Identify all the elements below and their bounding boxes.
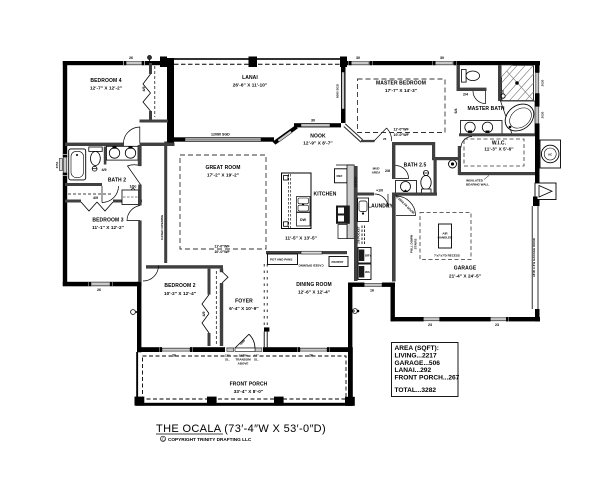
- svg-text:BATH 2: BATH 2: [108, 178, 126, 184]
- svg-text:26: 26: [129, 56, 133, 60]
- svg-text:HANDLER: HANDLER: [438, 236, 453, 240]
- svg-text:LANAI...292: LANAI...292: [395, 367, 432, 374]
- svg-text:CASED OPENING: CASED OPENING: [160, 214, 164, 240]
- svg-text:BEARING WALL: BEARING WALL: [466, 183, 489, 187]
- svg-text:FRONT PORCH...267: FRONT PORCH...267: [395, 375, 460, 382]
- svg-text:2030: 2030: [541, 79, 545, 86]
- svg-text:LANAI: LANAI: [242, 75, 258, 81]
- svg-text:26′-6″ X 11′-10″: 26′-6″ X 11′-10″: [233, 83, 268, 88]
- svg-text:26: 26: [97, 288, 101, 292]
- svg-text:30: 30: [356, 56, 360, 60]
- svg-text:10′-0″WF: 10′-0″WF: [394, 133, 410, 137]
- svg-text:4/9: 4/9: [142, 87, 146, 92]
- svg-text:11′-5″ X 13′-5″: 11′-5″ X 13′-5″: [285, 236, 318, 241]
- svg-text:DRY: DRY: [365, 254, 371, 258]
- svg-text:2030: 2030: [541, 111, 545, 118]
- svg-text:GREAT ROOM: GREAT ROOM: [205, 165, 240, 171]
- svg-text:BEDROOM 2: BEDROOM 2: [164, 283, 195, 289]
- svg-text:DINING ROOM: DINING ROOM: [296, 282, 332, 288]
- svg-text:TOTAL...3282: TOTAL...3282: [395, 387, 437, 394]
- svg-text:12′-7″ X 12′-2″: 12′-7″ X 12′-2″: [90, 86, 123, 91]
- svg-text:MASTER BATH: MASTER BATH: [467, 106, 504, 112]
- svg-text:BATH 2.5: BATH 2.5: [404, 163, 427, 169]
- svg-text:26: 26: [172, 353, 176, 357]
- svg-text:AREA (SQFT):: AREA (SQFT):: [395, 345, 439, 352]
- svg-text:SL.: SL.: [225, 358, 230, 362]
- svg-text:2/4: 2/4: [463, 93, 468, 97]
- svg-text:33′-4″ X 8′-0″: 33′-4″ X 8′-0″: [234, 389, 264, 394]
- svg-text:26: 26: [309, 353, 313, 357]
- svg-text:MASTER BEDROOM: MASTER BEDROOM: [376, 81, 426, 87]
- svg-text:12080 SGD: 12080 SGD: [211, 132, 230, 136]
- svg-text:10′-0″WF: 10′-0″WF: [214, 250, 230, 254]
- svg-text:17′-2″ X 19′-2″: 17′-2″ X 19′-2″: [207, 173, 240, 178]
- svg-text:LIVING...2217: LIVING...2217: [395, 352, 437, 359]
- svg-text:3051: 3051: [55, 161, 59, 168]
- svg-text:2/8 POCKET: 2/8 POCKET: [357, 226, 361, 244]
- svg-text:GARAGE...506: GARAGE...506: [395, 360, 441, 367]
- svg-text:6080 SGD: 6080 SGD: [336, 83, 340, 98]
- svg-text:SL.: SL.: [254, 358, 259, 362]
- svg-text:11′-3″ X 5′-6″: 11′-3″ X 5′-6″: [484, 146, 514, 151]
- svg-text:21′-4″ X 24′-5″: 21′-4″ X 24′-5″: [449, 274, 482, 279]
- svg-text:FRONT PORCH: FRONT PORCH: [230, 382, 268, 388]
- svg-text:COPYRIGHT TRINITY DRAFTING LLC: COPYRIGHT TRINITY DRAFTING LLC: [168, 437, 252, 442]
- svg-text:+1/0: +1/0: [376, 189, 383, 193]
- svg-text:KITCHEN: KITCHEN: [314, 192, 337, 198]
- svg-text:AREA: AREA: [372, 171, 381, 175]
- svg-text:11′-1″ X 12′-2″: 11′-1″ X 12′-2″: [92, 225, 125, 230]
- svg-text:11′-0″WF: 11′-0″WF: [394, 128, 410, 132]
- svg-text:2/8: 2/8: [385, 169, 390, 173]
- svg-text:BEDROOM 3: BEDROOM 3: [92, 218, 123, 224]
- svg-text:PANTRY: PANTRY: [332, 260, 344, 264]
- svg-text:18′W X 8′H GARAGE DOOR: 18′W X 8′H GARAGE DOOR: [532, 237, 536, 277]
- svg-text:NOOK: NOOK: [310, 133, 326, 139]
- svg-text:10′-2″ X 12′-4″: 10′-2″ X 12′-4″: [164, 291, 197, 296]
- svg-text:26: 26: [383, 137, 387, 141]
- svg-text:4/9: 4/9: [93, 196, 98, 200]
- svg-text:GARAGE: GARAGE: [454, 266, 477, 272]
- svg-text:LAUNDRY: LAUNDRY: [368, 204, 394, 210]
- svg-text:FOYER: FOYER: [235, 299, 253, 305]
- svg-text:30: 30: [440, 56, 444, 60]
- svg-text:STAIRS: STAIRS: [414, 239, 418, 250]
- svg-text:30: 30: [311, 119, 315, 123]
- svg-text:BEDROOM 4: BEDROOM 4: [90, 78, 121, 84]
- svg-text:REF: REF: [337, 174, 343, 178]
- svg-text:6′-4″ X 10′-9″: 6′-4″ X 10′-9″: [229, 306, 259, 311]
- svg-text:POT AND PANS: POT AND PANS: [270, 258, 292, 262]
- svg-text:THE OCALA (73′-4″W X 53′-0″D): THE OCALA (73′-4″W X 53′-0″D): [156, 423, 326, 435]
- svg-text:4/9: 4/9: [102, 168, 107, 172]
- svg-text:DW: DW: [300, 218, 307, 222]
- svg-text:17′-7″ X 14′-3″: 17′-7″ X 14′-3″: [385, 88, 418, 93]
- svg-text:23: 23: [428, 323, 432, 327]
- svg-text:16: 16: [370, 289, 374, 293]
- svg-text:BENCH: BENCH: [353, 177, 357, 188]
- svg-text:12′-6″ X 12′-4″: 12′-6″ X 12′-4″: [298, 290, 331, 295]
- svg-text:WA: WA: [365, 270, 371, 274]
- svg-text:CASED OPENING: CASED OPENING: [298, 264, 324, 268]
- svg-text:11′-0″WF: 11′-0″WF: [214, 245, 230, 249]
- svg-text:7′x7′x7′D RECESS: 7′x7′x7′D RECESS: [434, 254, 460, 258]
- svg-text:ABOVE: ABOVE: [238, 362, 249, 366]
- svg-text:4/9: 4/9: [202, 312, 206, 317]
- svg-text:12′-9″ X 8′-7″: 12′-9″ X 8′-7″: [303, 141, 333, 146]
- svg-text:23: 23: [495, 323, 499, 327]
- svg-text:6/4: 6/4: [454, 109, 458, 114]
